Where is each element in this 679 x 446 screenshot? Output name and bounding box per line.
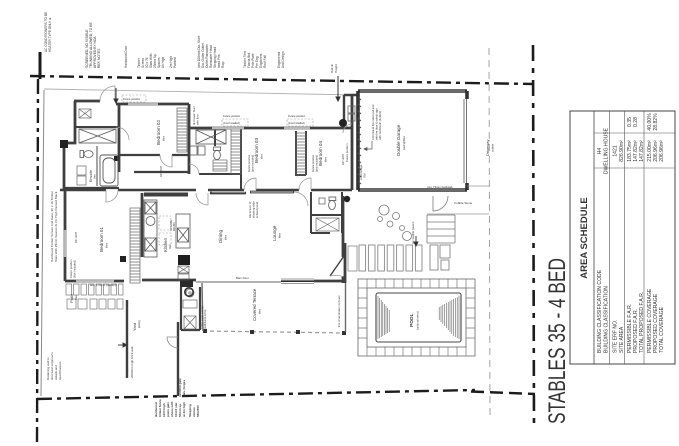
svg-text:Dining: Dining — [218, 230, 223, 243]
svg-text:with 'GARAGE' (& 4021): with 'GARAGE' (& 4021) — [378, 111, 382, 140]
svg-text:Kitchen: Kitchen — [163, 237, 168, 252]
svg-text:lats, 170mm treads(t): lats, 170mm treads(t) — [90, 283, 116, 287]
svg-text:(Just Installed): (Just Installed) — [288, 121, 305, 125]
svg-text:2000mm high brick wall: 2000mm high brick wall — [130, 346, 134, 378]
svg-text:tiles: tiles — [162, 135, 166, 141]
svg-text:tiles: tiles — [258, 308, 262, 314]
svg-text:(optional extra): (optional extra) — [416, 311, 420, 330]
svg-text:AC UNIT: AC UNIT — [159, 166, 163, 177]
svg-text:Bedroom 01: Bedroom 01 — [99, 227, 104, 252]
svg-text:SITE AREA: SITE AREA — [619, 326, 625, 353]
svg-text:Ensuite: Ensuite — [89, 170, 93, 182]
svg-text:Covered Terrace: Covered Terrace — [252, 288, 257, 321]
svg-text:Painted: Painted — [173, 57, 177, 68]
svg-text:(Not Included): (Not Included) — [73, 260, 77, 278]
svg-text:tiles: tiles — [278, 232, 282, 238]
svg-text:with fire door & safety sign: with fire door & safety sign — [375, 108, 379, 140]
svg-text:solid storage: solid storage — [359, 164, 363, 180]
svg-text:HEATER TYPE ONLY ⊕: HEATER TYPE ONLY ⊕ — [48, 17, 52, 52]
svg-text:paving/tiles: paving/tiles — [402, 135, 406, 150]
svg-text:TOTAL PROPOSED F.A.R.: TOTAL PROPOSED F.A.R. — [639, 292, 645, 353]
svg-text:Future position: Future position — [288, 114, 306, 118]
svg-text:permeable pavers: permeable pavers — [411, 221, 415, 244]
svg-text:REF. NOTES: REF. NOTES — [97, 48, 101, 68]
svg-text:tiles: tiles — [74, 295, 78, 300]
svg-text:Patio: Patio — [69, 293, 74, 303]
svg-text:tiles: tiles — [224, 234, 228, 240]
svg-text:As High: As High — [161, 57, 165, 68]
svg-text:550x550: 550x550 — [196, 405, 200, 417]
svg-text:paving: paving — [137, 320, 141, 328]
svg-text:206.96m²: 206.96m² — [659, 140, 665, 162]
svg-text:min. 73mm hardstab: min. 73mm hardstab — [427, 185, 453, 189]
svg-text:cobble: cobble — [491, 143, 495, 152]
svg-text:Double Garage: Double Garage — [396, 124, 401, 156]
svg-text:specifications: specifications — [58, 361, 62, 380]
svg-text:Cobble Stone: Cobble Stone — [454, 201, 473, 205]
svg-text:AC UNIT: AC UNIT — [74, 232, 78, 243]
svg-text:Future position: Future position — [247, 154, 251, 172]
svg-text:Hardwood Door: Hardwood Door — [124, 45, 128, 68]
svg-text:tiles: tiles — [260, 153, 264, 159]
svg-text:at 2m high: at 2m high — [182, 402, 186, 417]
svg-text:0.28: 0.28 — [633, 117, 639, 127]
svg-text:Bedroom 04: Bedroom 04 — [318, 141, 323, 166]
svg-text:BUILDING CLASSIFICATION CODE: BUILDING CLASSIFICATION CODE — [597, 269, 603, 353]
svg-text:Driveway: Driveway — [485, 140, 490, 156]
svg-text:SITE ERF NO.: SITE ERF NO. — [613, 320, 619, 353]
svg-text:120 minute fire rated wall and: 120 minute fire rated wall and — [371, 104, 375, 140]
svg-text:Yard: Yard — [132, 323, 137, 331]
svg-text:MILBO: MILBO — [172, 221, 176, 231]
svg-text:galv. hinges: galv. hinges — [182, 380, 186, 397]
svg-text:Future position: Future position — [311, 154, 315, 172]
svg-text:Bedroom 03: Bedroom 03 — [254, 138, 259, 163]
svg-text:Roof Fall: Roof Fall — [263, 55, 267, 68]
svg-text:tiles: tiles — [324, 156, 328, 162]
svg-text:826.90m²: 826.90m² — [619, 140, 625, 162]
svg-text:TOTAL COVERAGE: TOTAL COVERAGE — [659, 306, 665, 353]
svg-text:tiles: tiles — [168, 244, 172, 249]
svg-text:Future position: Future position — [345, 143, 349, 162]
svg-text:Lounge: Lounge — [272, 225, 277, 241]
svg-text:with floor: with floor — [196, 114, 200, 125]
svg-text:147.82m²: 147.82m² — [639, 140, 645, 162]
svg-text:AREA SCHEDULE: AREA SCHEDULE — [579, 197, 590, 278]
svg-text:POOL: POOL — [409, 313, 415, 327]
svg-text:H4: H4 — [597, 148, 603, 155]
svg-text:tiles: tiles — [93, 174, 97, 179]
svg-text:1421: 1421 — [613, 145, 619, 156]
svg-text:And Design: And Design — [281, 51, 285, 68]
svg-text:STABLES 35 - 4 BED: STABLES 35 - 4 BED — [544, 258, 571, 424]
svg-text:Rwp: Rwp — [221, 61, 225, 68]
svg-text:BUILDING CLASSIFICATION: BUILDING CLASSIFICATION — [604, 286, 610, 353]
svg-text:28.82%: 28.82% — [653, 113, 659, 131]
svg-text:Future position: Future position — [223, 114, 241, 118]
svg-text:line of verandah roof over: line of verandah roof over — [337, 295, 341, 327]
svg-text:Height: Height — [334, 64, 338, 73]
svg-text:& fixed panel: & fixed panel — [255, 201, 259, 218]
svg-text:Bedroom 02: Bedroom 02 — [156, 120, 161, 145]
svg-text:(additional extra): (additional extra) — [203, 310, 207, 329]
svg-text:tiles: tiles — [105, 242, 109, 248]
svg-text:(Just Installed): (Just Installed) — [223, 121, 240, 125]
svg-text:700: 700 — [363, 173, 367, 178]
svg-text:Slats With 25mm Spaces At 2m H: Slats With 25mm Spaces At 2m High Painte… — [54, 191, 58, 262]
svg-text:Barn Door: Barn Door — [236, 276, 249, 280]
svg-text:DWELLING HOUSE: DWELLING HOUSE — [604, 127, 610, 174]
svg-text:Future position: Future position — [123, 97, 141, 101]
